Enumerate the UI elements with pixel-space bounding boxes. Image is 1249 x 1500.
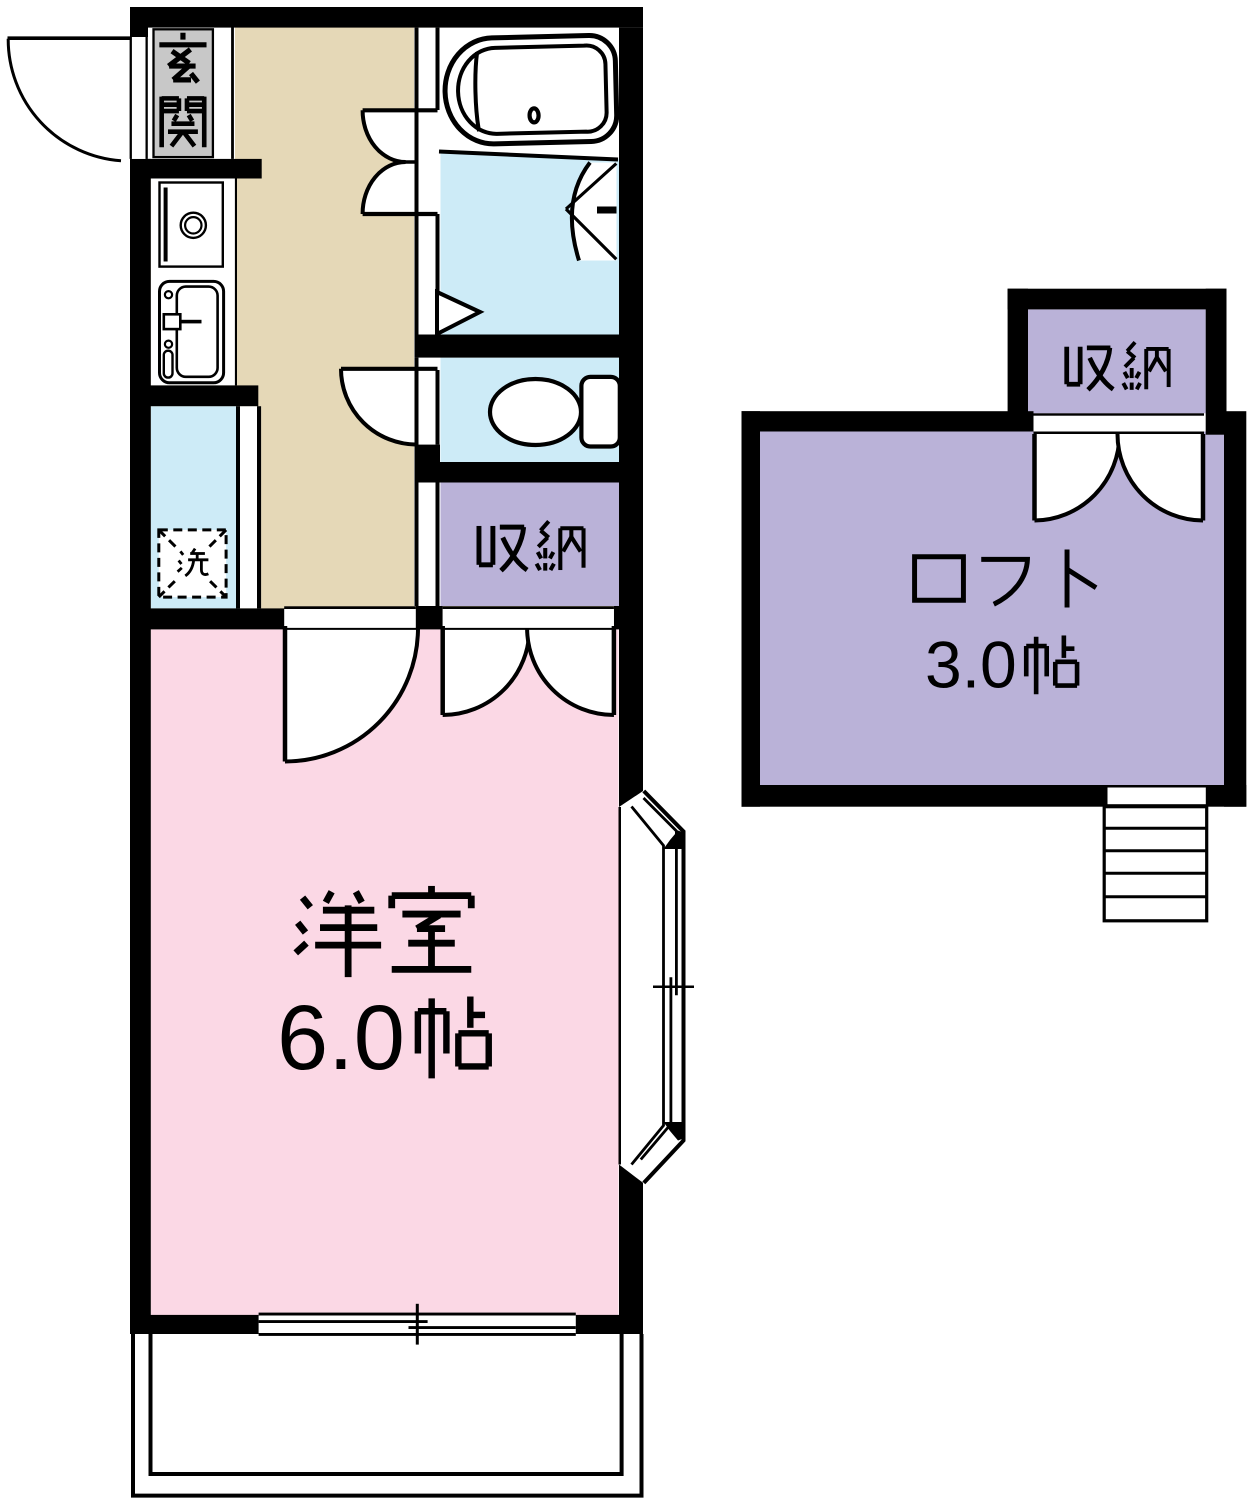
svg-text:6.0: 6.0 <box>277 987 405 1089</box>
svg-text:3.0: 3.0 <box>925 628 1017 702</box>
